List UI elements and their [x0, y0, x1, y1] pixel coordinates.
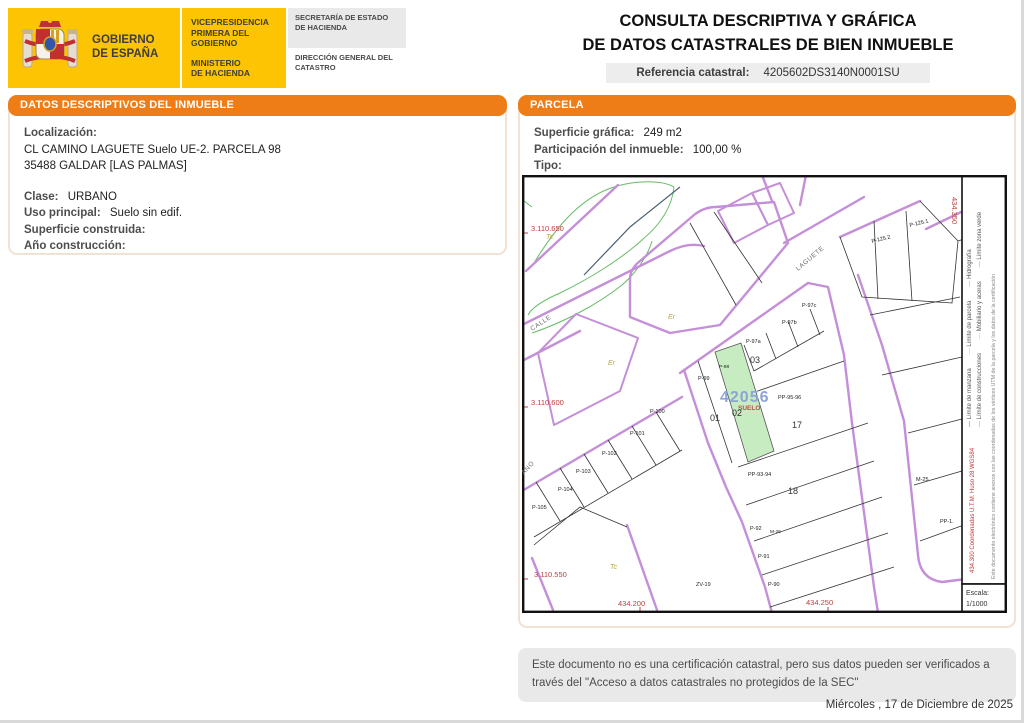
map-label-02: 02	[732, 408, 742, 418]
map-label-3-110-550: 3.110.550	[534, 570, 567, 579]
map-label-434-350: 434.350	[950, 197, 959, 224]
map-label-p-90: P-90	[768, 582, 780, 588]
map-label-p-97a: P-97a	[746, 339, 762, 345]
spain-coat-of-arms	[8, 8, 92, 88]
property-data-panel: DATOS DESCRIPTIVOS DEL INMUEBLE Localiza…	[8, 95, 507, 255]
clase-label: Clase:	[24, 191, 59, 203]
vicepresidency-label: VICEPRESIDENCIA PRIMERA DEL GOBIERNO	[191, 17, 282, 49]
map-label-p-98: P-98	[719, 364, 729, 370]
superficie-construida-label: Superficie construida:	[24, 224, 145, 236]
tipo-label: Tipo:	[534, 160, 562, 172]
map-label-p-105: P-105	[532, 505, 547, 511]
coat-of-arms-graphic	[19, 17, 81, 79]
map-label-p-101: P-101	[630, 431, 645, 437]
map-label-01: 01	[710, 413, 720, 423]
government-name-line2: DE ESPAÑA	[92, 48, 180, 62]
map-label-tc: Tc	[610, 564, 618, 571]
ministry-label: MINISTERIO DE HACIENDA	[191, 58, 282, 79]
sub-organisms-block: SECRETARÍA DE ESTADO DE HACIENDA DIRECCI…	[288, 8, 406, 88]
document-title-block: CONSULTA DESCRIPTIVA Y GRÁFICA DE DATOS …	[520, 10, 1016, 83]
participacion-value: 100,00 %	[693, 144, 742, 156]
map-label-zv-19: ZV-19	[696, 582, 711, 588]
map-label-42056: 42056	[720, 389, 770, 406]
map-label-p-97c: P-97c	[802, 303, 817, 309]
map-label-p-99: P-99	[698, 376, 710, 382]
document-date: Miércoles , 17 de Diciembre de 2025	[518, 699, 1013, 711]
map-label-er: Er	[608, 360, 616, 367]
disclaimer-line1: Este documento no es una certificación c…	[532, 657, 1002, 675]
scale-label: Escala:	[966, 590, 989, 597]
cadastral-reference-value: 4205602DS3140N0001SU	[763, 67, 899, 79]
anio-construccion-label: Año construcción:	[24, 240, 126, 252]
scale-value: 1/1000	[966, 601, 988, 608]
ministry-block: VICEPRESIDENCIA PRIMERA DEL GOBIERNO MIN…	[180, 8, 286, 88]
disclaimer-box: Este documento no es una certificación c…	[518, 648, 1016, 702]
legend-row-1: — Límite de manzana— Límite de parcela— …	[967, 249, 973, 427]
disclaimer-line2: través del "Acceso a datos catastrales n…	[532, 675, 1002, 693]
utm-coordinates-note: 434.300 Coordenadas U.T.M. Huso 28 WGS84	[970, 447, 976, 573]
participacion-label: Participación del inmueble:	[534, 144, 684, 156]
parcel-panel-header: PARCELA	[518, 95, 1016, 116]
map-label-434-250: 434.250	[806, 598, 833, 607]
map-label-pp-1-: PP-1.	[940, 519, 954, 525]
annex-note: Este documento electrónico contiene anex…	[991, 274, 997, 579]
map-label-p-92: P-92	[750, 526, 762, 532]
localizacion-address: CL CAMINO LAGUETE Suelo UE-2. PARCELA 98	[24, 144, 281, 156]
map-label-pp-93-94: PP-93-94	[748, 472, 771, 478]
cadastral-map-svg: — Límite de manzana— Límite de parcela— …	[522, 175, 1007, 613]
directorate-cadastre-label: DIRECCIÓN GENERAL DEL CATASTRO	[288, 48, 406, 88]
map-label-18: 18	[788, 486, 798, 496]
document-title-line2: DE DATOS CATASTRALES DE BIEN INMUEBLE	[520, 34, 1016, 58]
government-logo-block: GOBIERNO DE ESPAÑA VICEPRESIDENCIA PRIME…	[8, 8, 286, 88]
localizacion-label: Localización:	[24, 127, 97, 139]
government-name: GOBIERNO DE ESPAÑA	[92, 34, 180, 62]
uso-principal-label: Uso principal:	[24, 207, 101, 219]
cadastral-map: — Límite de manzana— Límite de parcela— …	[522, 175, 1007, 613]
superficie-grafica-label: Superficie gráfica:	[534, 127, 634, 139]
property-data-fields: Localización: CL CAMINO LAGUETE Suelo UE…	[24, 125, 495, 255]
map-label-3-110-650: 3.110.650	[531, 224, 564, 233]
map-label-03: 03	[750, 355, 760, 365]
document-title-line1: CONSULTA DESCRIPTIVA Y GRÁFICA	[520, 10, 1016, 34]
property-data-panel-header: DATOS DESCRIPTIVOS DEL INMUEBLE	[8, 95, 507, 116]
map-label-pp-95-96: PP-95-96	[778, 395, 801, 401]
map-label-17: 17	[792, 420, 802, 430]
map-label-434-200: 434.200	[618, 599, 645, 608]
map-label-p-100: P-100	[650, 409, 665, 415]
map-label-p-102: P-102	[602, 451, 617, 457]
legend-row-2: — Límite de construcciones— Mobiliario y…	[977, 211, 983, 427]
map-label-m-26: M-26	[770, 529, 781, 535]
map-label-p-104: P-104	[558, 487, 573, 493]
map-label-tc: Tc	[546, 234, 554, 241]
secretary-of-state-label: SECRETARÍA DE ESTADO DE HACIENDA	[288, 8, 406, 48]
map-label-er: Er	[668, 314, 676, 321]
clase-value: URBANO	[68, 191, 117, 203]
cadastral-document-page: GOBIERNO DE ESPAÑA VICEPRESIDENCIA PRIME…	[0, 0, 1024, 723]
map-label-m-25: M-25	[916, 477, 929, 483]
map-label-3-110-600: 3.110.600	[531, 398, 564, 407]
map-label-p-103: P-103	[576, 469, 591, 475]
map-label-p-97b: P-97b	[782, 320, 797, 326]
cadastral-reference-bar: Referencia catastral: 4205602DS3140N0001…	[606, 63, 930, 83]
localizacion-city: 35488 GALDAR [LAS PALMAS]	[24, 160, 187, 172]
government-name-line1: GOBIERNO	[92, 34, 180, 48]
map-label-p-91: P-91	[758, 554, 770, 560]
superficie-grafica-value: 249 m2	[644, 127, 682, 139]
cadastral-reference-label: Referencia catastral:	[636, 67, 749, 79]
uso-principal-value: Suelo sin edif.	[110, 207, 182, 219]
parcel-fields: Superficie gráfica: 249 m2 Participación…	[534, 125, 1004, 175]
